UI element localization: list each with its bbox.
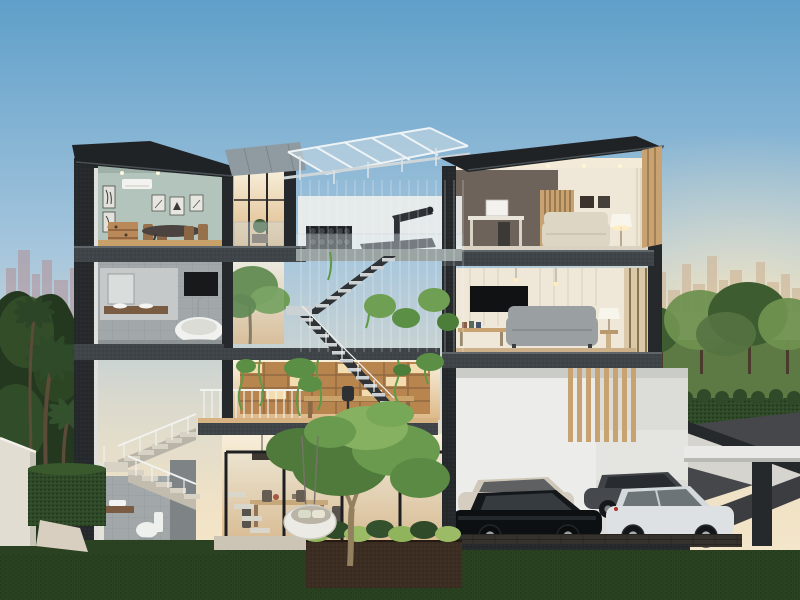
downlight xyxy=(156,171,160,175)
atrium xyxy=(224,262,290,344)
balcony xyxy=(234,168,284,246)
tail-light xyxy=(614,507,618,511)
downlight xyxy=(120,171,124,175)
picture-frame xyxy=(580,196,594,208)
box-hedge xyxy=(28,463,106,526)
cushion xyxy=(298,510,311,518)
dining-room xyxy=(98,164,222,246)
timber-fascia xyxy=(642,146,662,248)
vanity-mirror xyxy=(108,274,134,304)
glass-railing xyxy=(234,222,284,246)
bathroom xyxy=(98,262,223,345)
pendant-light xyxy=(514,278,519,283)
beige-sofa xyxy=(542,212,610,248)
air-conditioner xyxy=(122,179,152,189)
desk-chair xyxy=(498,222,510,248)
architectural-render xyxy=(0,0,800,600)
picture-frame xyxy=(598,196,610,208)
pendant-light xyxy=(554,282,559,287)
wall-panel xyxy=(184,272,218,296)
terrace xyxy=(214,536,312,550)
gray-sofa xyxy=(506,306,598,350)
timber-mullion-door xyxy=(624,268,648,352)
scene-canvas xyxy=(0,0,800,600)
cushion xyxy=(312,510,325,518)
living-room xyxy=(456,268,648,352)
family-room xyxy=(456,158,649,250)
